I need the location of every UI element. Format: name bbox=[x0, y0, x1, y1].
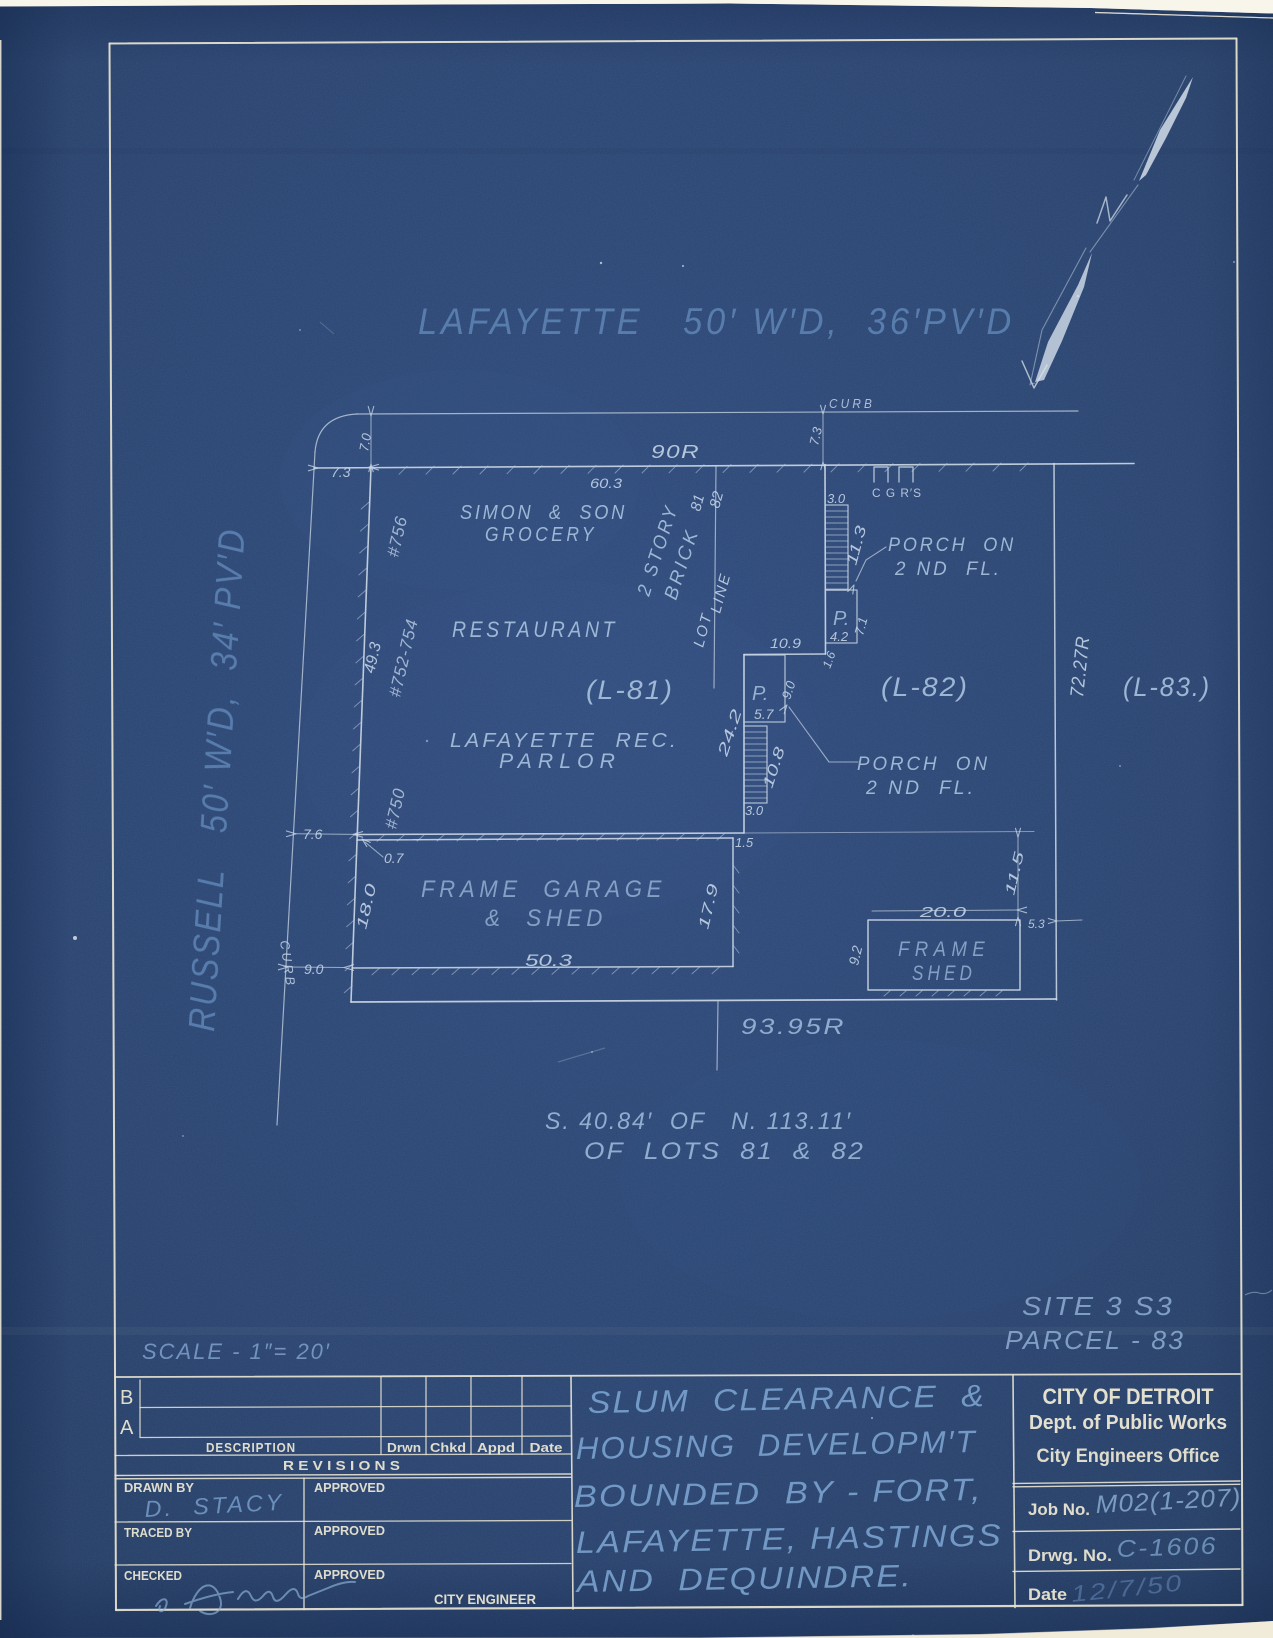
svg-text:P.: P. bbox=[833, 608, 849, 630]
svg-text:CITY ENGINEER: CITY ENGINEER bbox=[434, 1592, 536, 1607]
svg-text:SCALE - 1″= 20′: SCALE - 1″= 20′ bbox=[142, 1339, 331, 1364]
svg-text:AND DEQUINDRE.: AND DEQUINDRE. bbox=[574, 1558, 913, 1599]
svg-text:DESCRIPTION: DESCRIPTION bbox=[206, 1440, 296, 1455]
svg-text:0.7: 0.7 bbox=[384, 850, 405, 866]
svg-text:PARLOR: PARLOR bbox=[499, 750, 621, 773]
svg-text:CURB: CURB bbox=[829, 396, 875, 411]
svg-text:5.3: 5.3 bbox=[1028, 917, 1045, 931]
svg-text:10.9: 10.9 bbox=[770, 635, 801, 651]
svg-text:Drwn: Drwn bbox=[387, 1440, 421, 1455]
svg-text:S. 40.84′ OF N. 113.11′: S. 40.84′ OF N. 113.11′ bbox=[545, 1108, 852, 1135]
svg-text:APPROVED: APPROVED bbox=[314, 1523, 385, 1538]
svg-text:SITE 3 S3: SITE 3 S3 bbox=[1022, 1291, 1174, 1321]
svg-text:SLUM CLEARANCE &: SLUM CLEARANCE & bbox=[588, 1378, 987, 1420]
svg-text:CHECKED: CHECKED bbox=[124, 1568, 182, 1583]
svg-text:(L-81): (L-81) bbox=[586, 675, 674, 705]
svg-text:1.5: 1.5 bbox=[735, 835, 754, 850]
svg-text:Date: Date bbox=[530, 1440, 563, 1455]
svg-text:TRACED BY: TRACED BY bbox=[124, 1525, 192, 1540]
svg-text:PORCH ON: PORCH ON bbox=[888, 535, 1016, 556]
svg-text:50.3: 50.3 bbox=[525, 951, 573, 970]
svg-text:(L-82): (L-82) bbox=[881, 672, 969, 702]
svg-text:FRAME GARAGE: FRAME GARAGE bbox=[421, 876, 666, 903]
svg-text:3.0: 3.0 bbox=[827, 491, 846, 506]
svg-text:Job No.: Job No. bbox=[1028, 1500, 1090, 1519]
svg-text:SIMON & SON: SIMON & SON bbox=[460, 502, 627, 524]
svg-text:60.3: 60.3 bbox=[590, 475, 622, 491]
svg-text:Chkd: Chkd bbox=[430, 1440, 466, 1455]
svg-text:C-1606: C-1606 bbox=[1116, 1532, 1218, 1563]
svg-text:OF LOTS 81 & 82: OF LOTS 81 & 82 bbox=[584, 1138, 865, 1165]
svg-text:9.0: 9.0 bbox=[304, 961, 324, 977]
svg-text:20.0: 20.0 bbox=[918, 904, 967, 921]
svg-text:2 ND FL.: 2 ND FL. bbox=[865, 778, 976, 799]
svg-text:7.3: 7.3 bbox=[331, 464, 351, 480]
svg-text:90R: 90R bbox=[651, 442, 700, 462]
svg-text:Dept. of Public Works: Dept. of Public Works bbox=[1029, 1412, 1227, 1434]
svg-text:Drwg. No.: Drwg. No. bbox=[1028, 1546, 1112, 1565]
svg-text:P.: P. bbox=[752, 683, 768, 705]
svg-text:PORCH ON: PORCH ON bbox=[857, 754, 990, 775]
svg-text:7.6: 7.6 bbox=[303, 826, 323, 842]
svg-text:5.7: 5.7 bbox=[754, 706, 775, 722]
svg-text:LAFAYETTE 50′ W′D, 36′PV′D: LAFAYETTE 50′ W′D, 36′PV′D bbox=[418, 301, 1015, 342]
svg-text:CITY OF DETROIT: CITY OF DETROIT bbox=[1043, 1384, 1215, 1409]
svg-text:SHED: SHED bbox=[912, 962, 976, 985]
svg-text:PARCEL - 83: PARCEL - 83 bbox=[1005, 1325, 1185, 1355]
svg-text:HOUSING DEVELOPM′T: HOUSING DEVELOPM′T bbox=[576, 1424, 978, 1466]
svg-text:City Engineers Office: City Engineers Office bbox=[1037, 1446, 1220, 1467]
svg-text:R E V I S I O N S: R E V I S I O N S bbox=[283, 1458, 400, 1473]
svg-text:DRAWN BY: DRAWN BY bbox=[124, 1480, 194, 1495]
svg-text:BOUNDED BY - FORT,: BOUNDED BY - FORT, bbox=[574, 1472, 984, 1514]
svg-text:GROCERY: GROCERY bbox=[485, 524, 597, 546]
svg-text:LAFAYETTE, HASTINGS: LAFAYETTE, HASTINGS bbox=[576, 1518, 1004, 1560]
svg-text:C G R′S: C G R′S bbox=[872, 486, 922, 500]
svg-text:(L-83.): (L-83.) bbox=[1123, 672, 1211, 702]
svg-text:93.95R: 93.95R bbox=[741, 1014, 846, 1039]
svg-text:& SHED: & SHED bbox=[485, 905, 607, 932]
svg-text:4.2: 4.2 bbox=[830, 629, 849, 644]
svg-text:APPROVED: APPROVED bbox=[314, 1480, 385, 1495]
svg-text:Date: Date bbox=[1028, 1585, 1067, 1604]
svg-text:2 ND FL.: 2 ND FL. bbox=[894, 559, 1002, 580]
svg-text:B: B bbox=[120, 1387, 133, 1409]
svg-text:3.0: 3.0 bbox=[745, 803, 764, 818]
svg-text:FRAME: FRAME bbox=[898, 938, 990, 961]
svg-text:LAFAYETTE REC.: LAFAYETTE REC. bbox=[450, 730, 679, 752]
svg-text:A: A bbox=[120, 1417, 134, 1439]
svg-text:Appd: Appd bbox=[477, 1440, 515, 1455]
svg-text:APPROVED: APPROVED bbox=[314, 1567, 385, 1582]
svg-text:RESTAURANT: RESTAURANT bbox=[452, 617, 618, 642]
